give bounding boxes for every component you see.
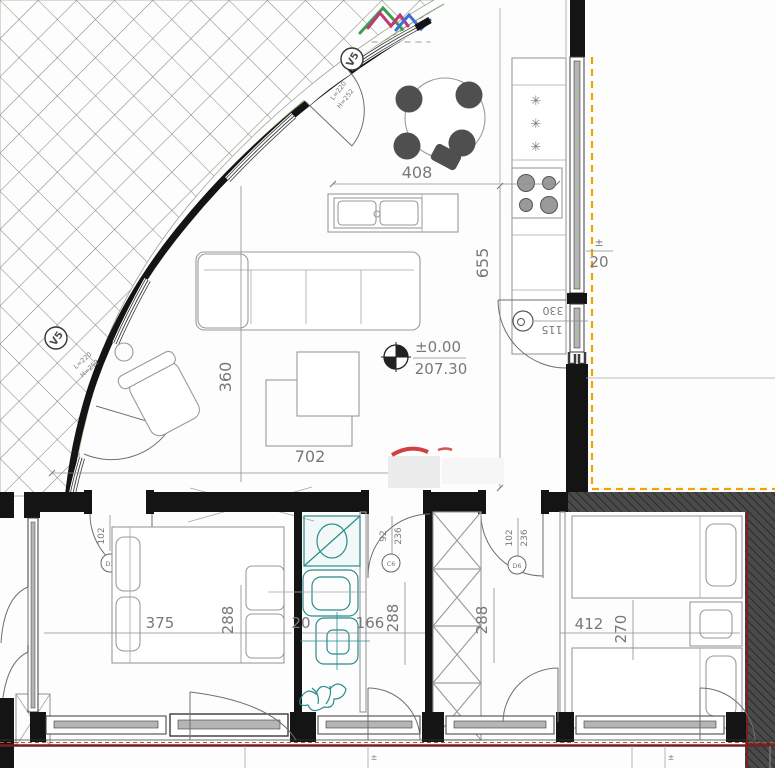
dim-655-label: 655 xyxy=(473,248,492,279)
dim-20-right-label: 20 xyxy=(589,253,608,271)
dark-wall-vertical xyxy=(745,512,775,768)
left-exterior-wall xyxy=(0,492,40,712)
dim-288-1-label: 288 xyxy=(219,606,237,635)
nightstand-stack xyxy=(246,614,284,658)
right-window-glazing xyxy=(574,61,580,289)
dim-360-label: 360 xyxy=(216,362,235,393)
side-table xyxy=(115,343,133,361)
door-tag-2-h: 236 xyxy=(394,527,404,544)
dimension-360: 360 xyxy=(216,186,241,482)
dining-chair xyxy=(456,82,483,109)
dim-288-3-label: 288 xyxy=(473,606,491,635)
dimension-20-right: ± 20 xyxy=(586,236,613,271)
dim-pm-label: ± xyxy=(594,236,603,249)
sofa xyxy=(196,252,420,330)
red-watermark xyxy=(388,449,504,489)
bathroom-right-wall xyxy=(360,512,366,712)
door-tag-3-h: 236 xyxy=(520,529,530,546)
stove xyxy=(512,168,562,218)
dim-288-2-label: 288 xyxy=(384,604,402,633)
door-tag-2-mark: C6 xyxy=(387,560,396,568)
floor-plan-canvas: V5 L=220 H=252 V5 L=220 H=252 xyxy=(0,0,775,768)
door-swing-hall xyxy=(368,514,430,578)
level-value-top: ±0.00 xyxy=(415,338,461,356)
survey-leaders xyxy=(245,746,770,768)
freezer-star-3: ✳ xyxy=(531,140,542,155)
floor-plan-drawing: V5 L=220 H=252 V5 L=220 H=252 xyxy=(0,0,775,768)
freezer-symbol: ✳ ✳ ✳ xyxy=(531,94,542,155)
freezer-star-1: ✳ xyxy=(531,94,542,109)
dim-412-label: 412 xyxy=(575,615,604,633)
dim-408-label: 408 xyxy=(402,163,433,182)
dim-270-label: 270 xyxy=(612,615,630,644)
survey-mark-1: ± xyxy=(371,753,378,762)
floor-drain-scribble xyxy=(300,684,346,711)
dimension-702: 702 xyxy=(49,447,426,476)
bedroom-divider-wall xyxy=(560,512,565,742)
terrace-door-swing-1 xyxy=(1,587,28,645)
interior-wall-middle xyxy=(30,490,568,514)
kitchen-counter xyxy=(328,194,458,232)
armchair xyxy=(116,349,205,442)
opening-width: 330 xyxy=(543,304,564,317)
level-value-bottom: 207.30 xyxy=(415,360,468,378)
dining-chair xyxy=(396,86,423,113)
bottom-windows xyxy=(46,714,724,736)
door-tag-2-w: 92 xyxy=(379,530,389,541)
nightstand-stack xyxy=(246,566,284,610)
door-tag-3-mark: D6 xyxy=(512,562,521,570)
freezer-star-2: ✳ xyxy=(531,117,542,132)
dimension-655: 655 xyxy=(473,183,503,491)
nightstand xyxy=(690,602,742,646)
elevation-marker: ±0.00 207.30 xyxy=(381,338,467,378)
dim-166-label: 166 xyxy=(356,614,385,632)
dining-chair xyxy=(394,133,421,160)
dim-702-label: 702 xyxy=(295,447,326,466)
washbasin xyxy=(303,570,358,616)
coffee-table-2 xyxy=(297,352,359,416)
door-tag-3-w: 102 xyxy=(505,529,515,546)
dim-20-label: 20 xyxy=(291,614,310,632)
dark-wall-horizontal xyxy=(566,492,775,512)
living-room xyxy=(115,252,420,522)
door-tag-3: 102 236 D6 xyxy=(505,518,530,574)
door-tag-1-w: 102 xyxy=(97,527,107,544)
survey-mark-2: ± xyxy=(668,753,675,762)
door-tag-2: 92 236 C6 xyxy=(379,516,404,572)
dim-375-label: 375 xyxy=(146,614,175,632)
bedroom-1 xyxy=(16,527,284,746)
door-swing-bedroom2-lower xyxy=(503,668,558,722)
opening-height: 115 xyxy=(542,323,563,336)
dining-table xyxy=(394,78,486,172)
shower xyxy=(304,516,360,566)
